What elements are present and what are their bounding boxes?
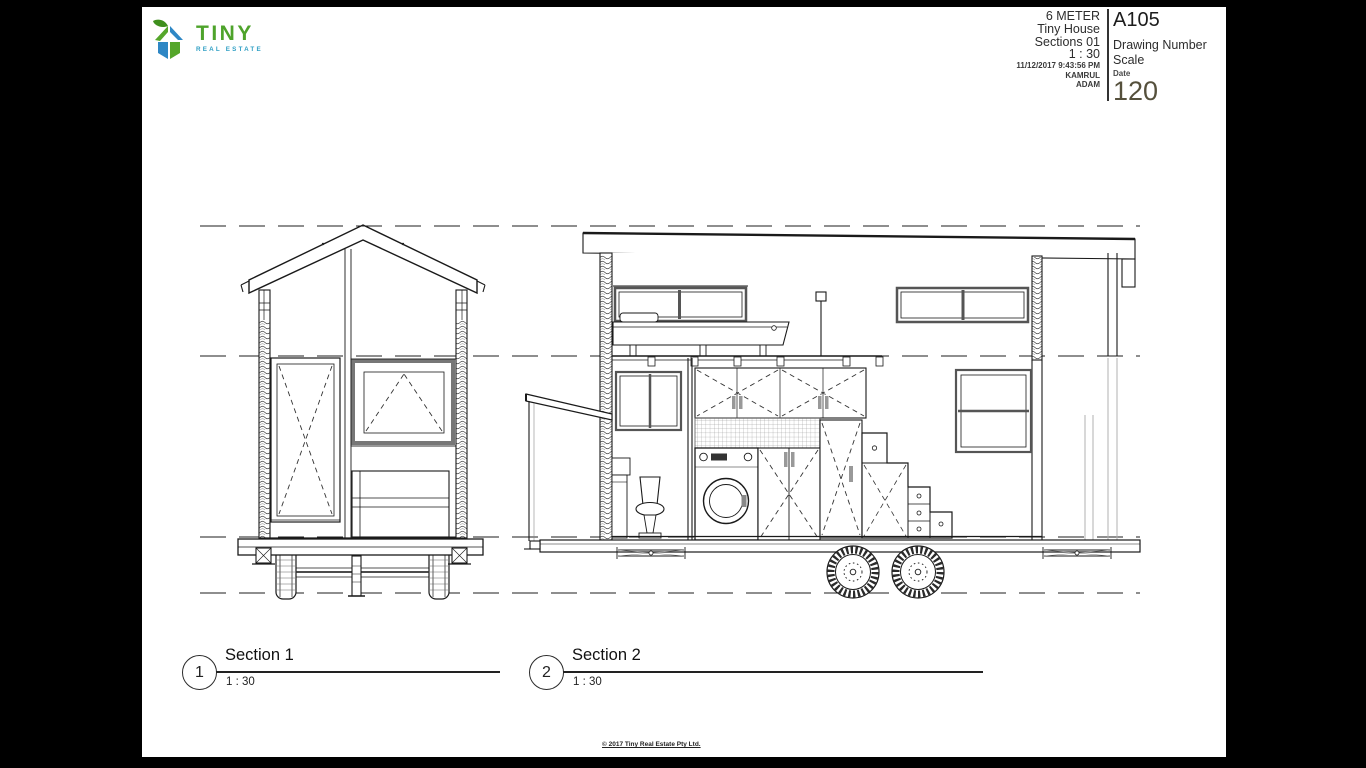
viewport-2-scale: 1 : 30	[573, 676, 602, 688]
viewport-2-rule	[563, 671, 983, 673]
scale-label: Scale	[1113, 53, 1207, 68]
viewport-1-title: Section 1	[225, 646, 294, 665]
viewport-1-number-bubble: 1	[182, 655, 217, 690]
title-block-divider	[1107, 9, 1109, 101]
checker-name: ADAM	[1016, 80, 1100, 90]
scale-value: 1 : 30	[1016, 48, 1100, 61]
company-logo: TINY REAL ESTATE	[152, 19, 263, 63]
copyright-text: © 2017 Tiny Real Estate Pty Ltd.	[602, 741, 701, 748]
viewport-2-number-bubble: 2	[529, 655, 564, 690]
title-block-labels: A105 Drawing Number Scale Date 120	[1113, 9, 1207, 105]
author-name: KAMRUL	[1016, 71, 1100, 81]
project-name-line1: 6 METER	[1016, 10, 1100, 23]
title-block-values: 6 METER Tiny House Sections 01 1 : 30 11…	[1016, 10, 1100, 90]
date-value: 120	[1113, 78, 1207, 105]
viewer-canvas: TINY REAL ESTATE 6 METER Tiny House Sect…	[0, 0, 1366, 768]
viewport-2-number: 2	[542, 664, 551, 682]
viewport-1-number: 1	[195, 664, 204, 682]
viewport-1-rule	[216, 671, 500, 673]
sheet-number: A105	[1113, 9, 1207, 32]
house-with-leaf-icon	[152, 19, 188, 63]
project-name-line2: Tiny House	[1016, 23, 1100, 36]
viewport-2-title: Section 2	[572, 646, 641, 665]
logo-tagline-text: REAL ESTATE	[196, 46, 263, 53]
drawing-number-label: Drawing Number	[1113, 38, 1207, 53]
print-datetime: 11/12/2017 9:43:56 PM	[1016, 61, 1100, 71]
viewport-1-scale: 1 : 30	[226, 676, 255, 688]
logo-brand-text: TINY	[196, 23, 263, 44]
drawing-sheet: TINY REAL ESTATE 6 METER Tiny House Sect…	[142, 7, 1226, 757]
